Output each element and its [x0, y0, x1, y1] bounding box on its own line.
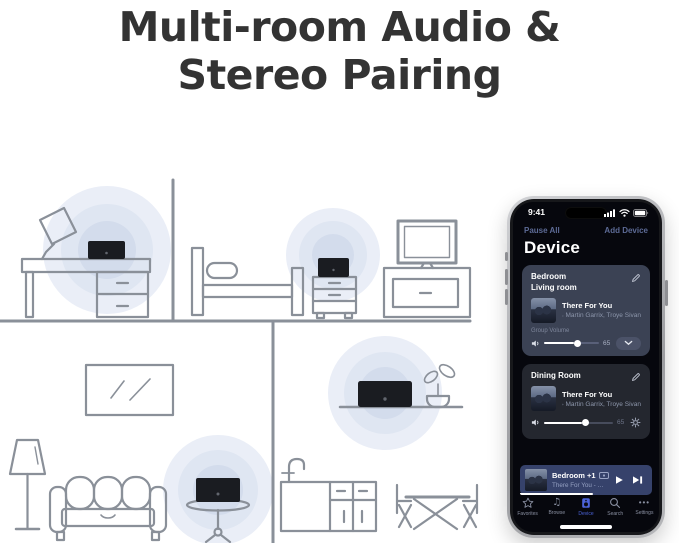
tab-browse[interactable]: ♫ Browse: [542, 497, 571, 524]
phone-screen: 9:41 Pause All Add: [513, 202, 659, 532]
speaker-group-icon: [562, 313, 564, 319]
headline-line1: Multi-room Audio &: [0, 4, 679, 52]
room-names: Dining Room: [531, 371, 581, 382]
volume-down-button[interactable]: [505, 289, 508, 305]
volume-icon: [531, 339, 540, 348]
speaker-device-icon: [580, 497, 592, 509]
floor-lamp: [10, 440, 45, 529]
dynamic-island: [565, 207, 607, 219]
track-artist: Martin Garrix, Troye Sivan: [566, 401, 642, 408]
album-art: [531, 298, 556, 323]
tab-device[interactable]: Device: [571, 497, 600, 524]
sound-halo-bedroom: [286, 208, 380, 302]
group-volume-label: Group Volume: [531, 328, 641, 334]
mini-player[interactable]: Bedroom +1 There For You - Martin Garrix: [520, 465, 652, 495]
status-icons: [604, 209, 649, 217]
mini-player-title: Bedroom +1: [552, 471, 596, 480]
edit-icon[interactable]: [631, 273, 641, 283]
chevron-down-icon: [624, 340, 633, 346]
track-title: There For You: [562, 301, 641, 310]
search-icon: [609, 497, 621, 509]
album-art: [525, 469, 547, 491]
tv-console: [384, 268, 470, 317]
skip-next-icon[interactable]: [632, 475, 644, 485]
group-volume-slider[interactable]: [544, 339, 599, 347]
home-indicator[interactable]: [560, 525, 612, 529]
device-card-bedroom[interactable]: Bedroom Living room There For You: [522, 265, 650, 356]
play-icon[interactable]: [614, 475, 624, 485]
speaker-nightstand: [318, 258, 349, 277]
volume-value: 65: [603, 340, 612, 347]
cast-icon: [599, 472, 609, 479]
tab-favorites[interactable]: Favorites: [513, 497, 542, 524]
headline: Multi-room Audio & Stereo Pairing: [0, 4, 679, 100]
page-title: Device: [524, 238, 580, 258]
battery-icon: [633, 209, 649, 217]
wall-mirror: [86, 365, 173, 415]
room-names: Bedroom Living room: [531, 272, 577, 294]
speaker-side-table: [196, 478, 240, 502]
volume-value: 65: [617, 419, 626, 426]
speaker-shelf: [358, 381, 412, 407]
kitchen-counter: [281, 459, 376, 531]
source-badge-icon: [562, 401, 564, 408]
track-title: There For You: [562, 390, 641, 399]
status-time: 9:41: [528, 207, 545, 217]
marketing-image: Multi-room Audio & Stereo Pairing: [0, 0, 679, 543]
device-card-dining[interactable]: Dining Room There For You Ma: [522, 364, 650, 439]
pause-all-button[interactable]: Pause All: [524, 226, 560, 235]
tab-settings[interactable]: ••• Settings: [630, 497, 659, 524]
sofa: [50, 477, 166, 540]
tab-bar: Favorites ♫ Browse Device: [513, 497, 659, 524]
rooms-illustration: [0, 160, 485, 543]
headline-line2: Stereo Pairing: [0, 52, 679, 100]
wifi-icon: [619, 209, 630, 217]
bistro-set: [397, 485, 477, 529]
track-artist: Martin Garrix, Troye Sivan: [566, 312, 642, 319]
action-button[interactable]: [505, 252, 508, 261]
ellipsis-icon: •••: [639, 497, 650, 508]
playback-progress: [520, 493, 593, 495]
volume-up-button[interactable]: [505, 269, 508, 285]
cellular-icon: [604, 209, 616, 217]
collapse-button[interactable]: [616, 337, 641, 350]
volume-icon: [531, 418, 540, 427]
star-icon: [522, 497, 534, 509]
add-device-button[interactable]: Add Device: [604, 226, 648, 235]
speaker-desk: [88, 241, 125, 259]
music-note-icon: ♫: [552, 497, 561, 508]
edit-icon[interactable]: [631, 372, 641, 382]
tv: [398, 221, 456, 268]
phone: 9:41 Pause All Add: [507, 196, 665, 538]
album-art: [531, 386, 556, 411]
power-button[interactable]: [665, 280, 668, 306]
gear-icon[interactable]: [630, 417, 641, 428]
volume-slider[interactable]: [544, 419, 613, 427]
mini-player-subtitle: There For You - Martin Garrix: [552, 482, 609, 489]
tab-search[interactable]: Search: [601, 497, 630, 524]
